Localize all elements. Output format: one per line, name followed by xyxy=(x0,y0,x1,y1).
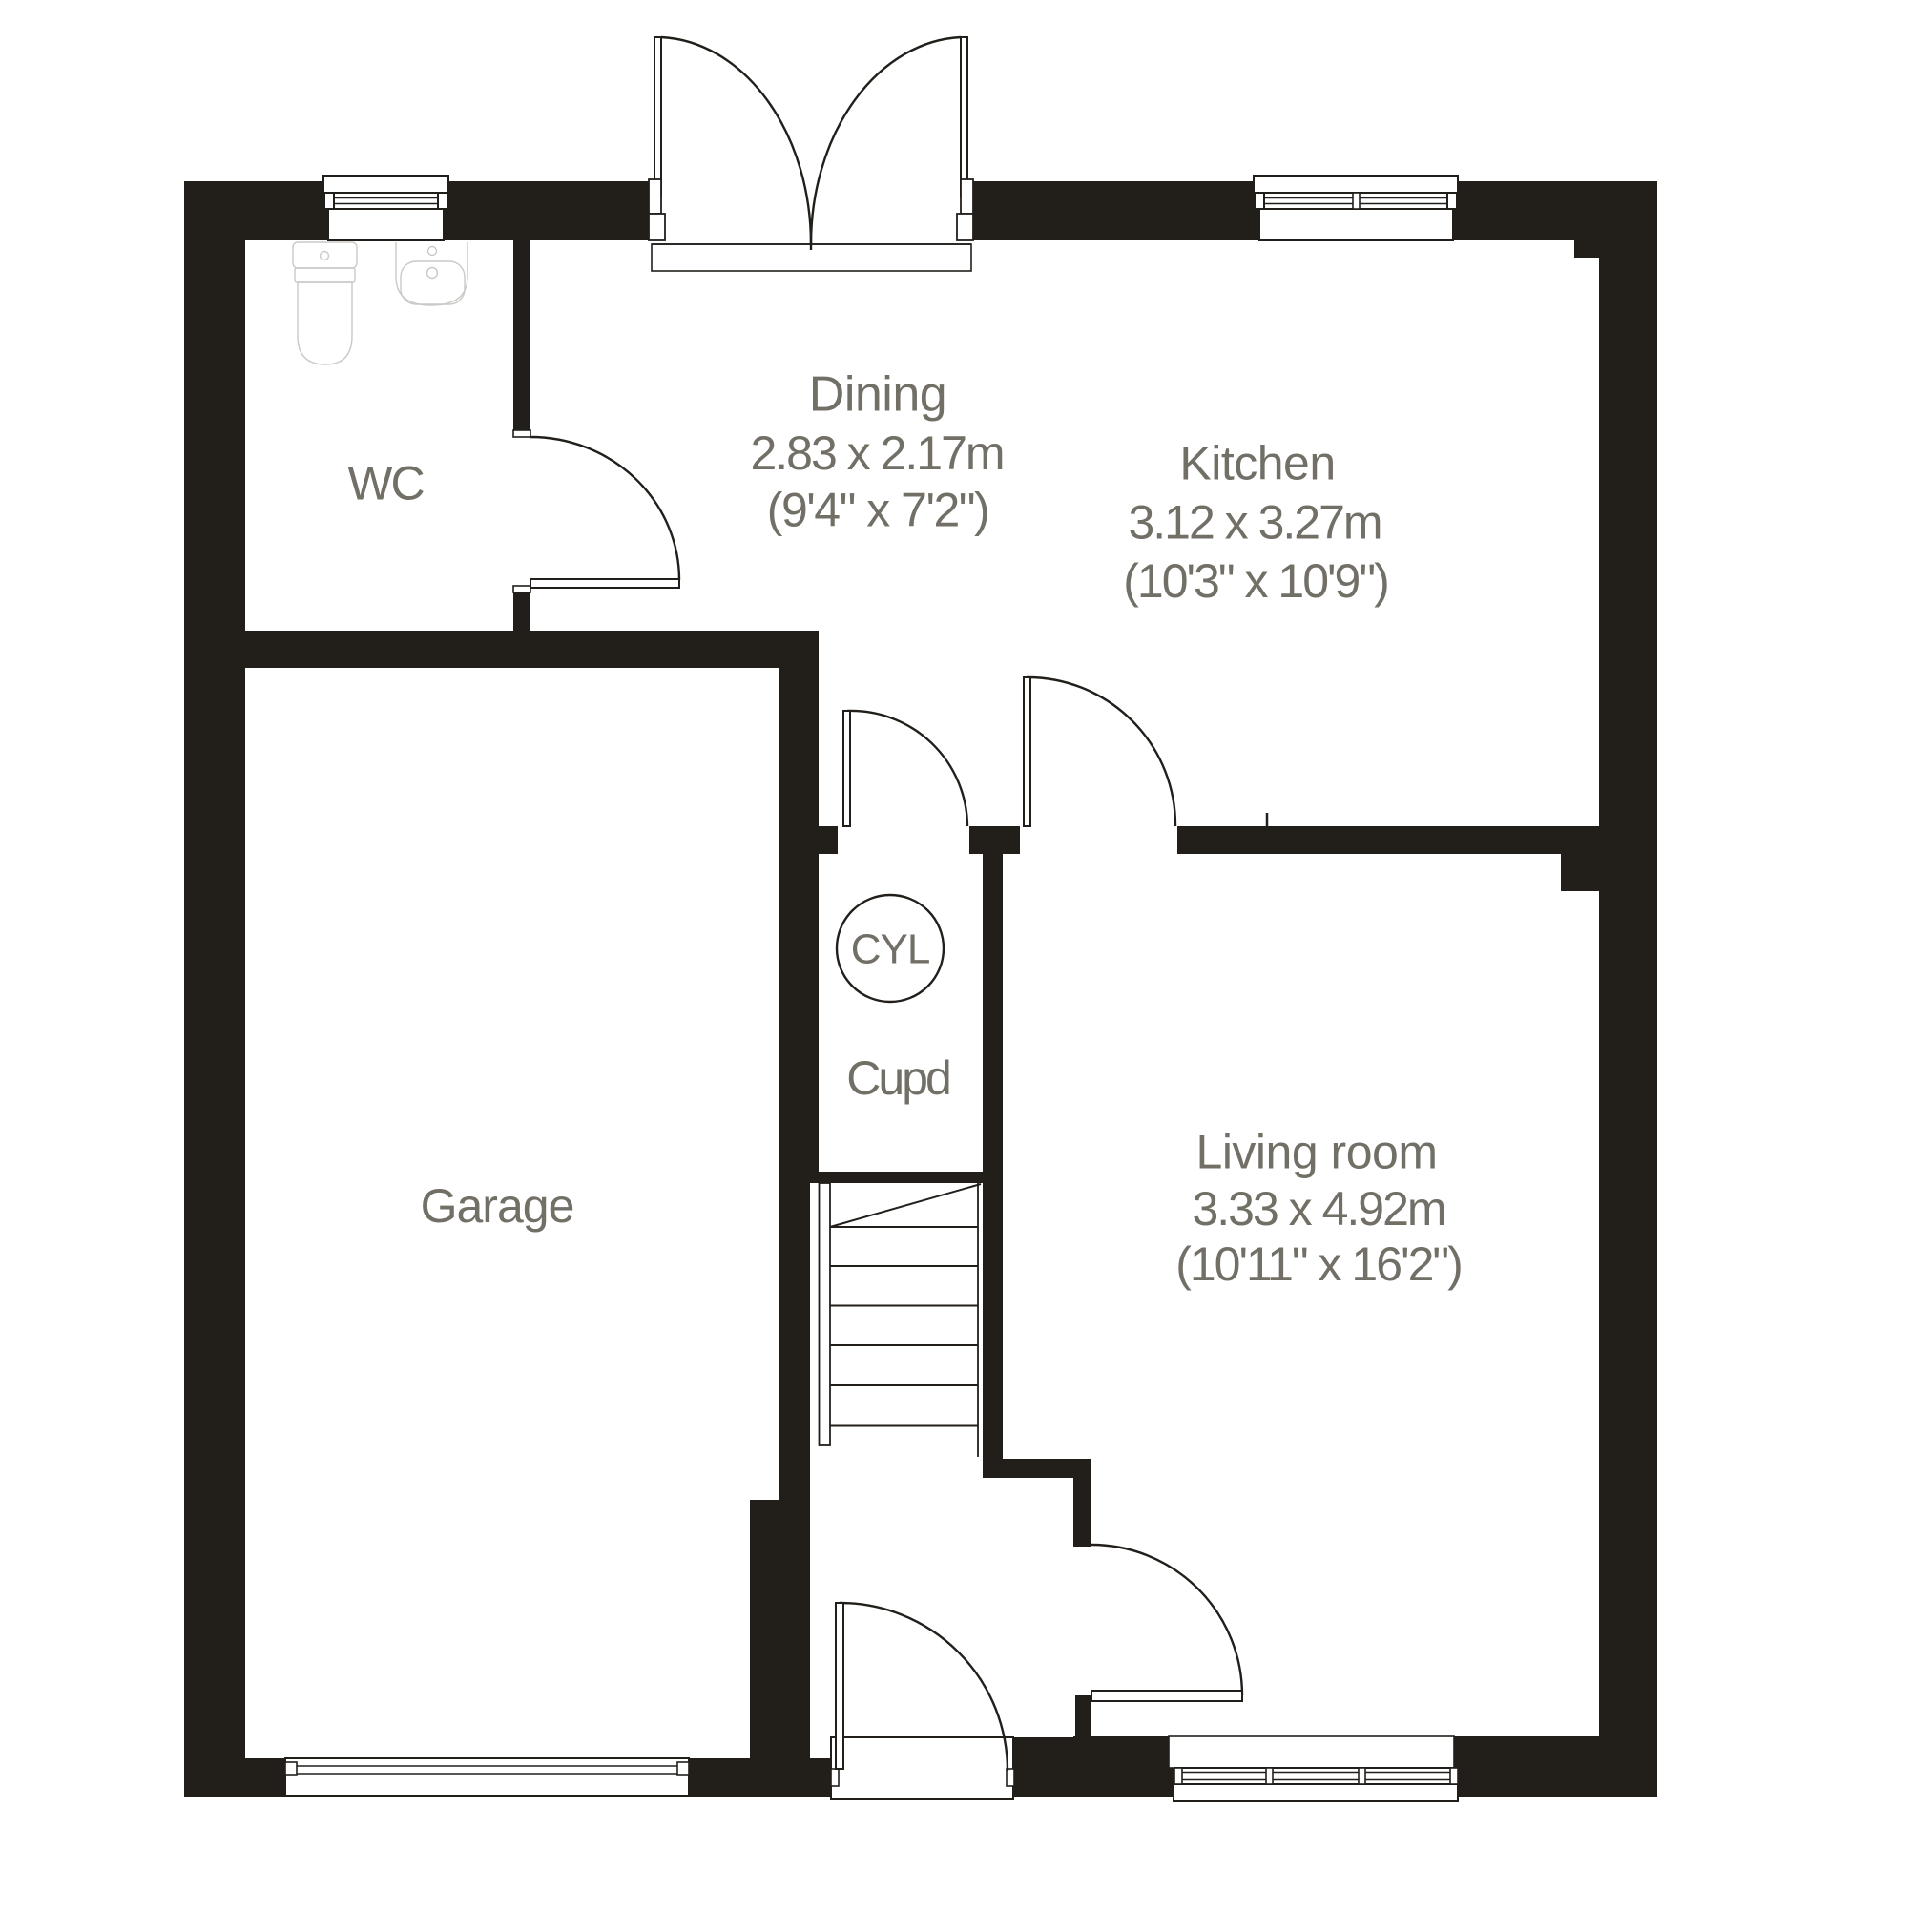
svg-text:2.83 x 2.17m: 2.83 x 2.17m xyxy=(750,426,1003,480)
svg-text:3.12 x 3.27m: 3.12 x 3.27m xyxy=(1128,496,1381,550)
svg-text:WC: WC xyxy=(347,457,424,510)
svg-text:(10'3" x 10'9"): (10'3" x 10'9") xyxy=(1123,554,1388,608)
svg-text:Kitchen: Kitchen xyxy=(1179,437,1335,490)
svg-text:3.33 x 4.92m: 3.33 x 4.92m xyxy=(1192,1182,1444,1236)
svg-text:Living room: Living room xyxy=(1196,1126,1438,1179)
svg-text:CYL: CYL xyxy=(851,926,930,973)
svg-text:(9'4" x 7'2"): (9'4" x 7'2") xyxy=(767,484,988,537)
svg-text:Garage: Garage xyxy=(421,1179,574,1233)
svg-text:(10'11" x 16'2"): (10'11" x 16'2") xyxy=(1175,1237,1462,1291)
svg-text:Dining: Dining xyxy=(809,367,946,423)
svg-text:Cupd: Cupd xyxy=(846,1051,949,1105)
